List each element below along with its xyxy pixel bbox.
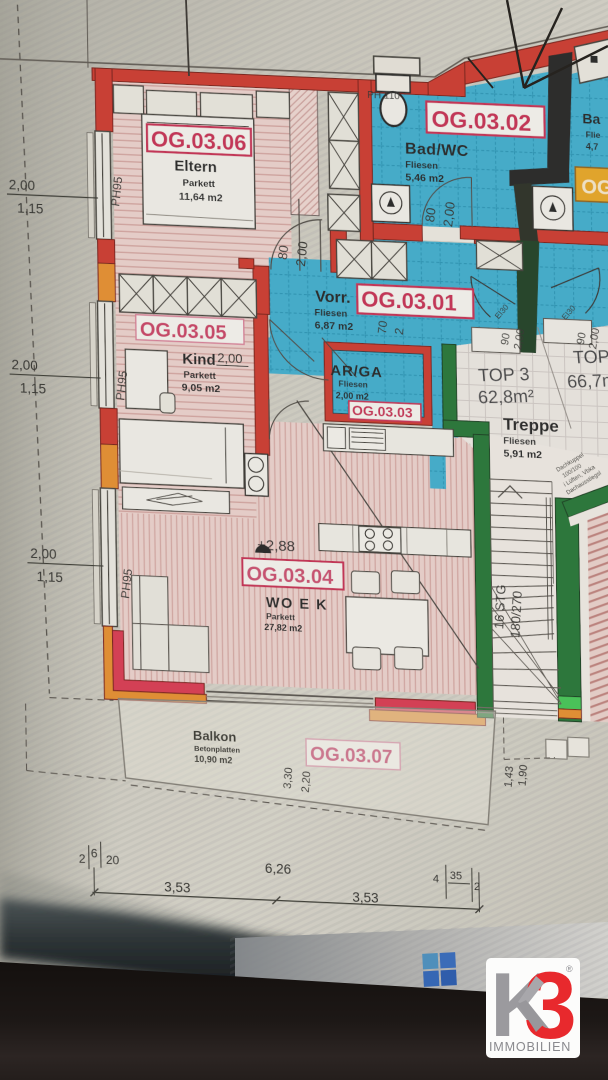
svg-text:IMMOBILIEN: IMMOBILIEN: [489, 1040, 571, 1054]
svg-text:®: ®: [566, 964, 573, 974]
